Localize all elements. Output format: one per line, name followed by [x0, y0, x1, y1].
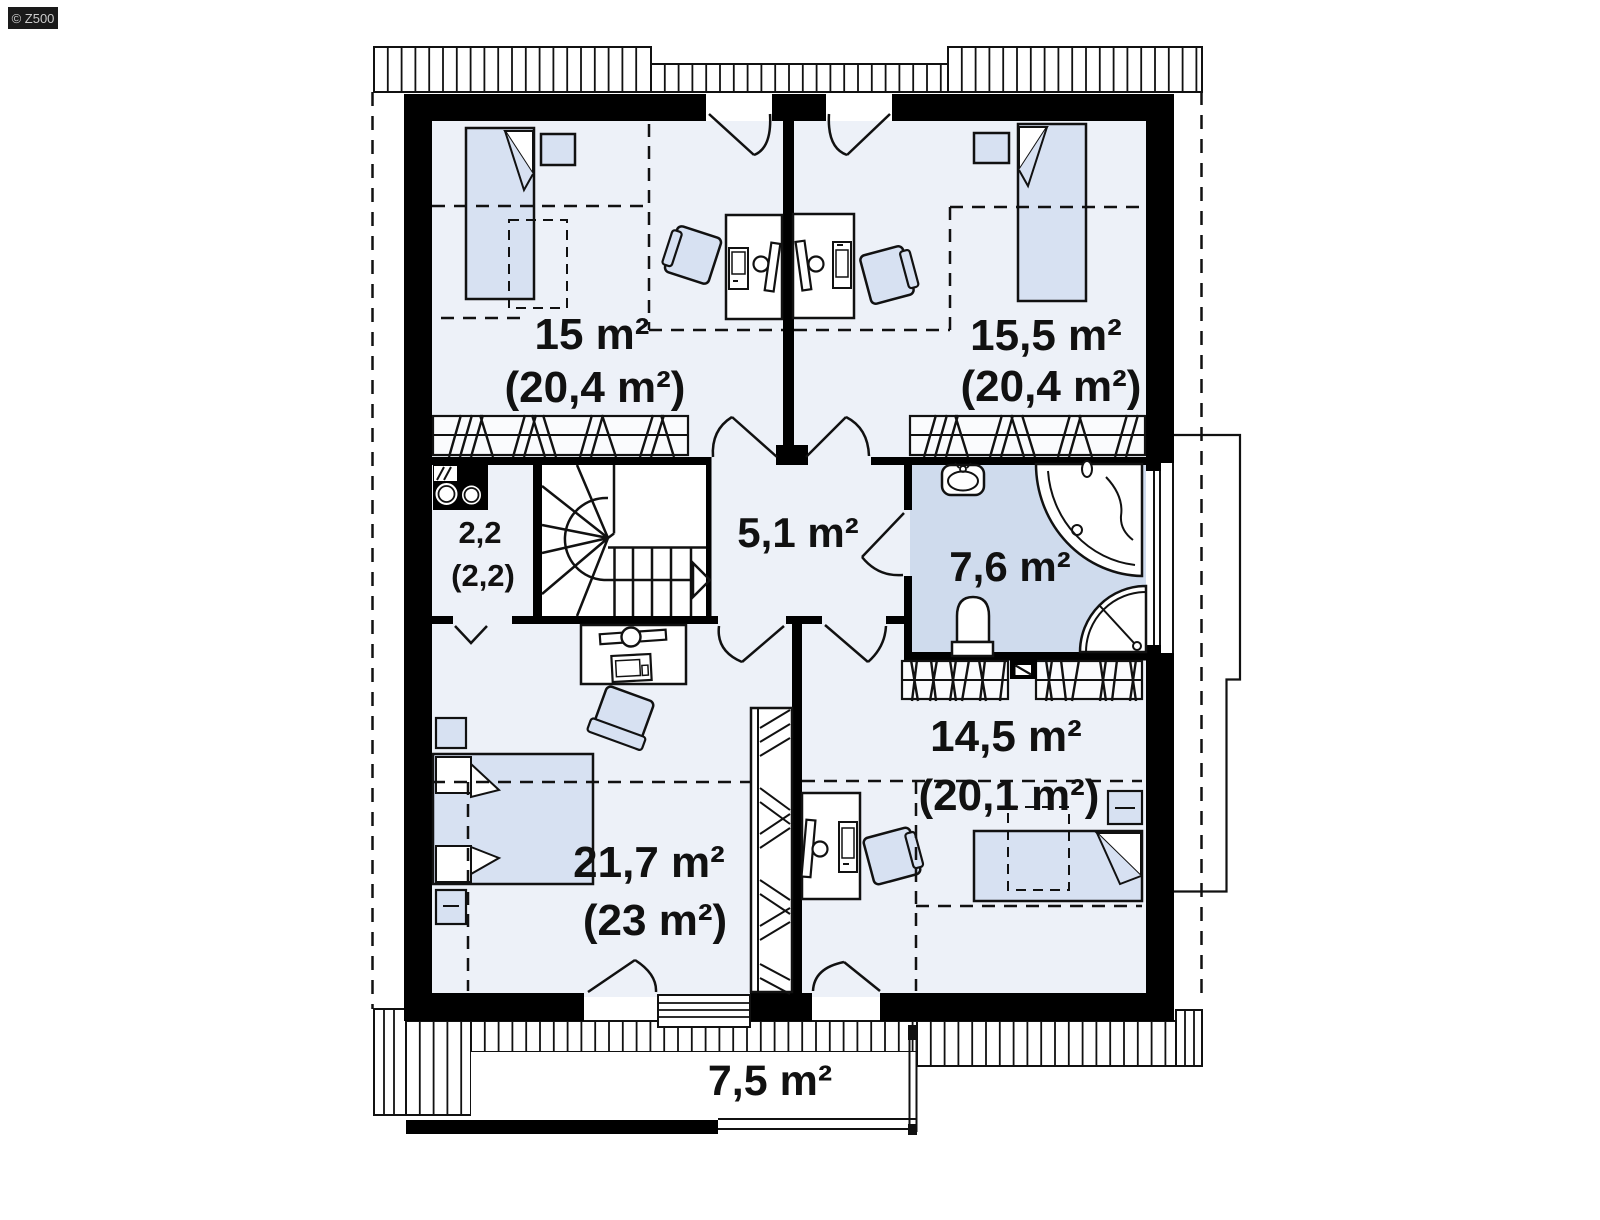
svg-text:7,6 m²: 7,6 m²: [949, 543, 1070, 590]
svg-text:5,1 m²: 5,1 m²: [737, 509, 858, 556]
svg-text:(20,4 m²): (20,4 m²): [505, 363, 686, 412]
svg-text:2,2: 2,2: [458, 515, 501, 550]
svg-text:14,5 m²: 14,5 m²: [930, 712, 1082, 761]
svg-text:7,5 m²: 7,5 m²: [708, 1057, 832, 1105]
svg-text:(2,2): (2,2): [451, 558, 515, 593]
svg-text:(23 m²): (23 m²): [583, 896, 727, 945]
svg-text:(20,1 m²): (20,1 m²): [919, 771, 1100, 820]
svg-text:15 m²: 15 m²: [535, 310, 650, 359]
svg-text:15,5 m²: 15,5 m²: [970, 311, 1122, 360]
svg-text:© Z500: © Z500: [12, 11, 55, 26]
svg-text:(20,4 m²): (20,4 m²): [961, 362, 1142, 411]
svg-text:21,7 m²: 21,7 m²: [573, 838, 725, 887]
